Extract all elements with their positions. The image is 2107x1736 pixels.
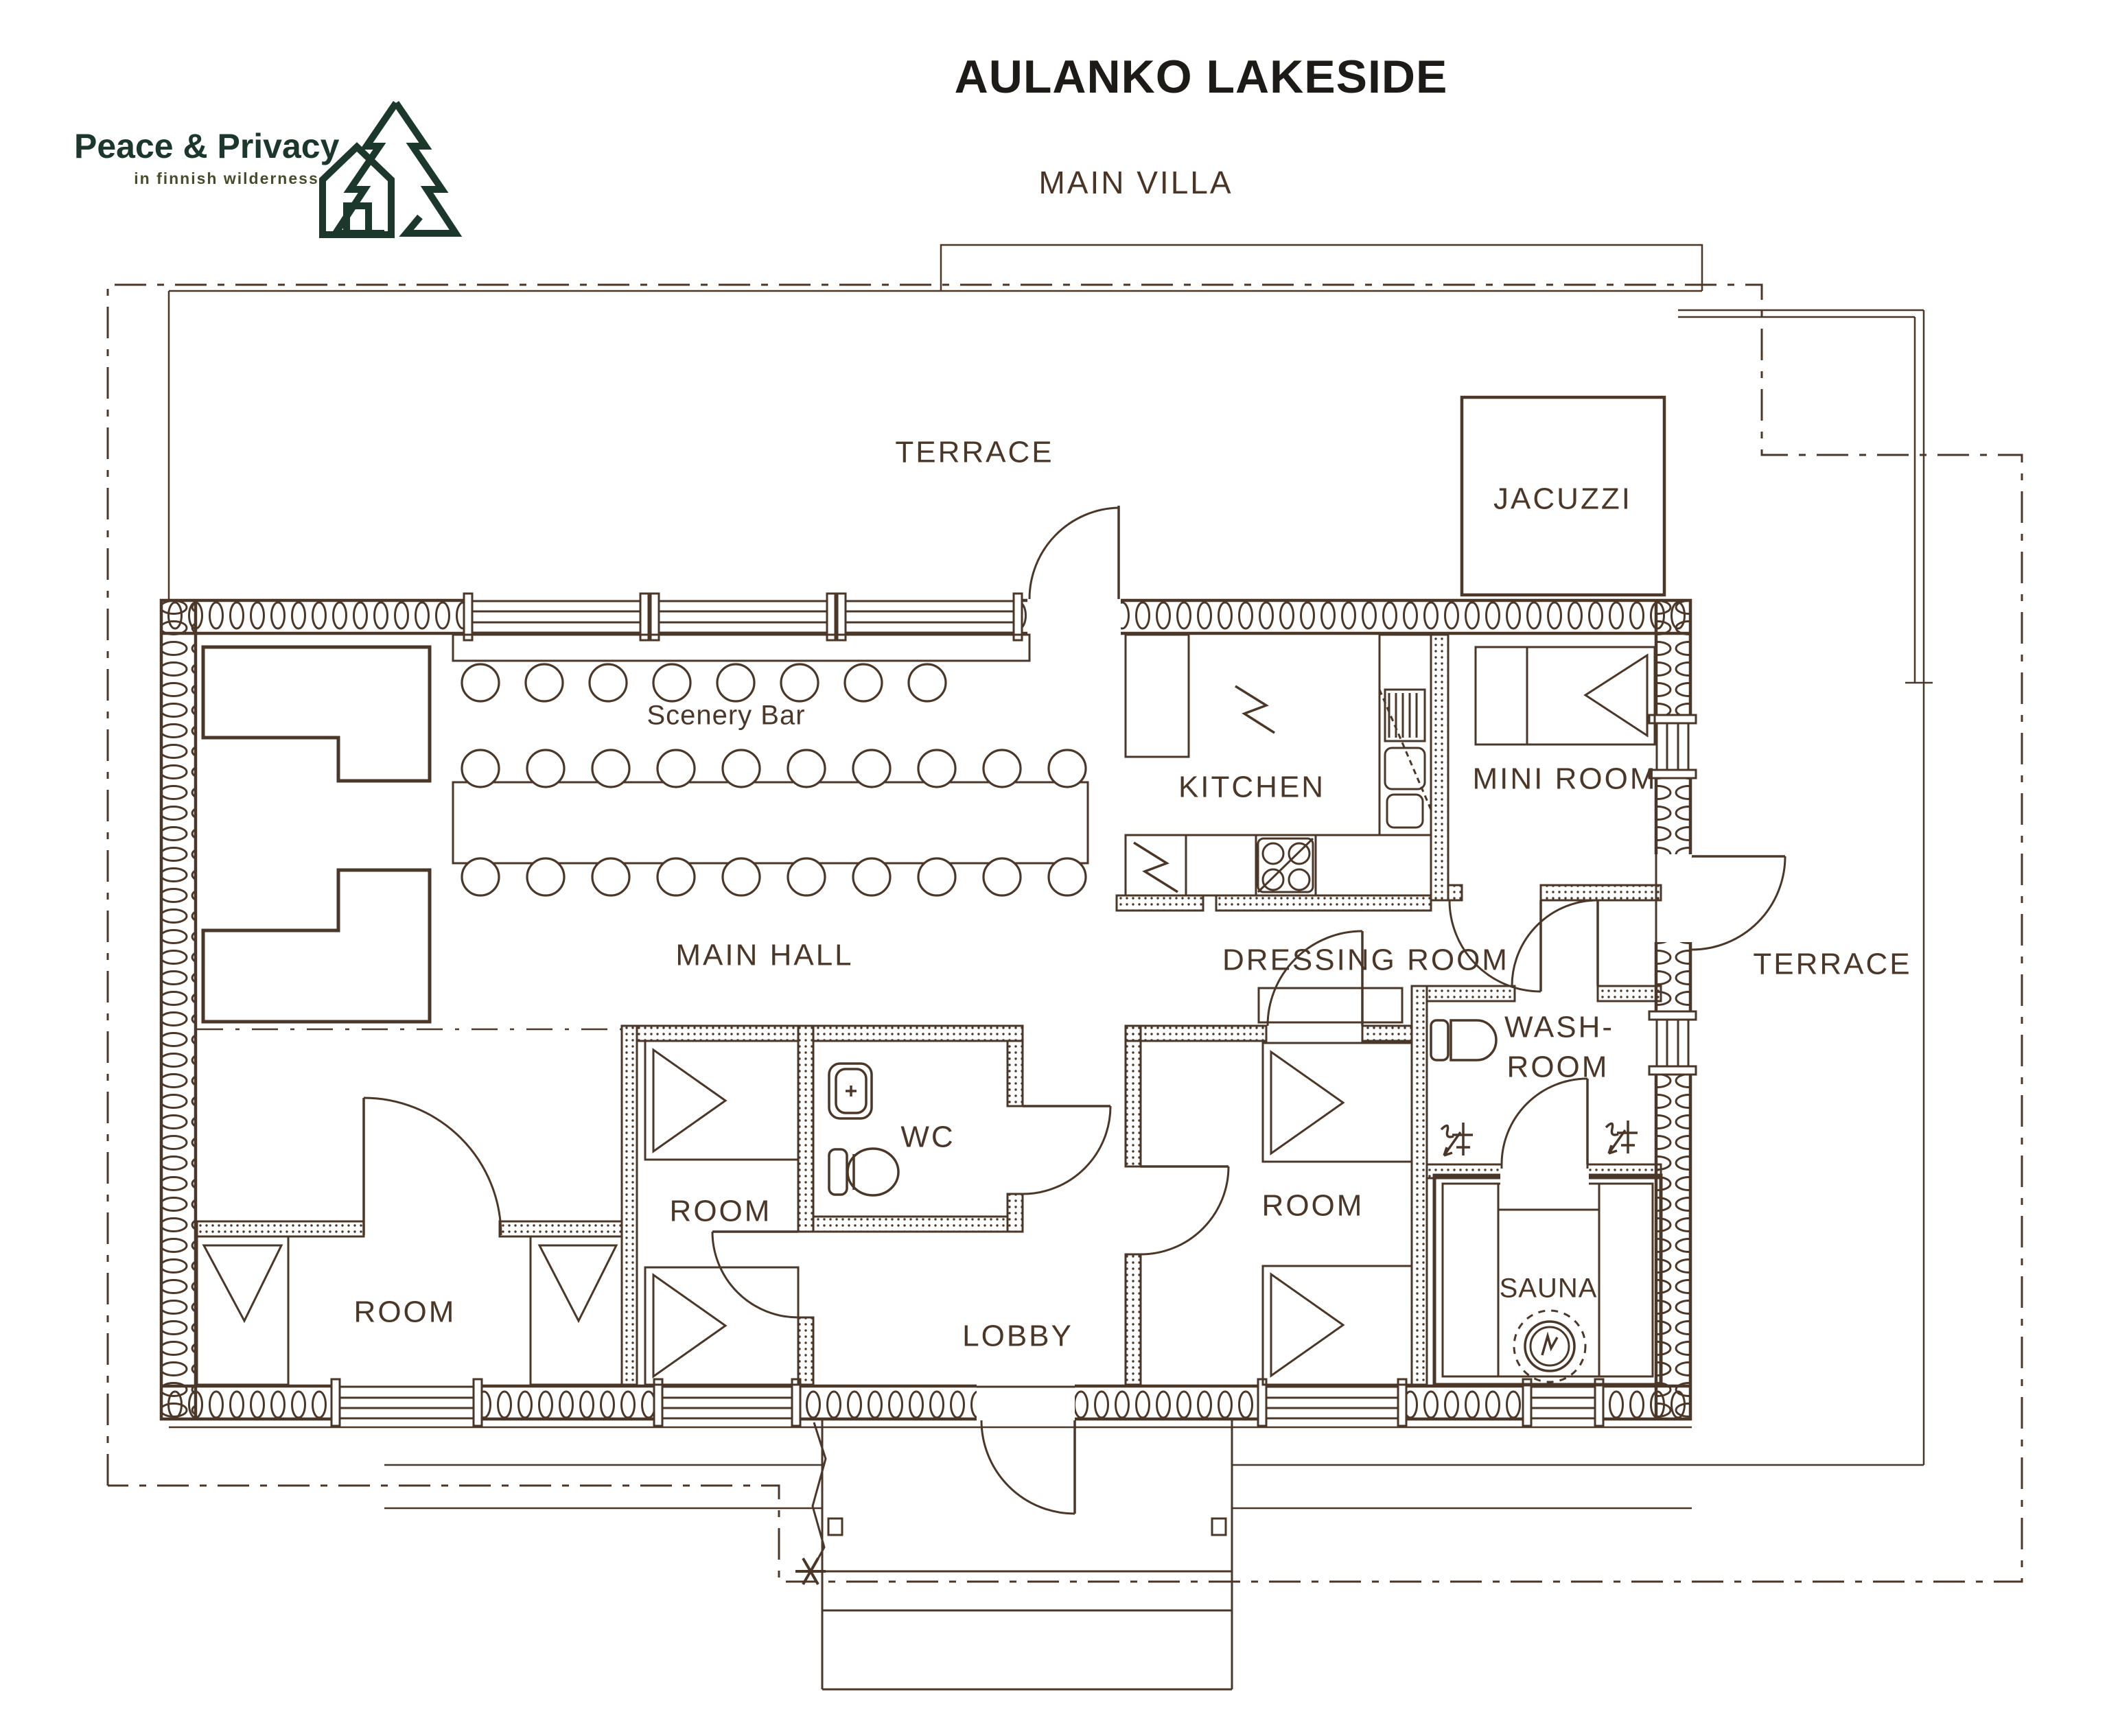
bed-pillow: [204, 1245, 281, 1321]
bed-pillow: [653, 1275, 725, 1376]
window-bottom-3: [1258, 1379, 1406, 1426]
porch-post: [828, 1518, 842, 1535]
wall-wc-north: [813, 1026, 1023, 1041]
wall-bedroom-north: [197, 1221, 364, 1236]
logo-tree-house-icon: [323, 103, 456, 235]
page-title: AULANKO LAKESIDE: [955, 51, 1448, 103]
window-top-2: [651, 594, 835, 640]
dining-chairs: [462, 750, 1086, 895]
wall-room-left-east: [622, 1026, 637, 1385]
toilet-wc: [829, 1149, 898, 1195]
label-main-hall: MAIN HALL: [675, 939, 853, 972]
label-scenery-bar: Scenery Bar: [647, 701, 805, 731]
toilet-washroom: [1431, 1020, 1496, 1060]
door-terrace-top: [1027, 506, 1121, 637]
dressing-bench: [1259, 988, 1402, 1022]
wall-kitchen-south: [1117, 895, 1203, 911]
sauna-heater-icon: [1514, 1311, 1585, 1382]
label-room-right: ROOM: [1262, 1189, 1364, 1223]
window-top-3: [837, 594, 1022, 640]
shower-icon: [1606, 1121, 1638, 1153]
bed: [531, 1236, 622, 1385]
page-subtitle: MAIN VILLA: [1038, 165, 1233, 200]
stove: [1258, 838, 1313, 892]
label-lobby: LOBBY: [962, 1319, 1073, 1353]
porch-post: [1212, 1518, 1226, 1535]
corner-sofa-lower: [203, 870, 430, 1022]
window-bottom-2: [654, 1379, 800, 1426]
bed-pillow: [653, 1050, 725, 1151]
wall-washroom-west: [1412, 986, 1427, 1385]
wc-sink: [829, 1064, 872, 1118]
wall-kitchen-east: [1431, 635, 1448, 900]
survey-star-marker: [795, 1558, 826, 1584]
label-terrace-top: TERRACE: [895, 436, 1053, 469]
kitchen-fixtures: [1126, 635, 1431, 895]
door-room-right: [1141, 1166, 1229, 1254]
door-bedroom-left: [364, 1098, 501, 1235]
label-terrace-right: TERRACE: [1753, 948, 1911, 981]
window-bottom-1: [331, 1379, 482, 1426]
dining-table: [453, 782, 1088, 863]
door-terrace-right: [1652, 854, 1785, 950]
miniroom-bed: [1476, 647, 1655, 744]
main-hall-furniture: [203, 635, 1088, 1022]
logo-subtitle: in finnish wilderness: [134, 169, 318, 187]
label-washroom-2: ROOM: [1507, 1051, 1609, 1084]
label-mini-room: MINI ROOM: [1473, 762, 1657, 796]
bar-stools: [462, 664, 946, 701]
interior-walls: [197, 635, 1661, 1385]
label-room-left: ROOM: [354, 1295, 456, 1329]
bed-pillow: [1271, 1274, 1343, 1376]
logo: Peace & Privacy in finnish wilderness: [74, 103, 456, 235]
window-right-2: [1649, 1011, 1696, 1075]
bed-pillow: [539, 1245, 616, 1321]
appliance-symbol: [1235, 686, 1274, 733]
appliance-symbol: [1134, 843, 1178, 892]
wall-left: [160, 599, 197, 1420]
window-top-1: [464, 594, 649, 640]
bar-counter: [453, 635, 1029, 661]
door-room-center: [712, 1232, 798, 1317]
label-wc: WC: [900, 1121, 955, 1154]
entrance-porch: [795, 1420, 1232, 1689]
label-kitchen: KITCHEN: [1178, 771, 1325, 804]
label-room-center: ROOM: [670, 1195, 772, 1228]
door-entrance: [977, 1382, 1075, 1514]
corner-sofa-upper: [203, 647, 430, 781]
logo-title: Peace & Privacy: [74, 127, 340, 165]
label-washroom-1: WASH-: [1504, 1011, 1614, 1044]
door-washroom-north: [1512, 900, 1598, 986]
label-dressing-room: DRESSING ROOM: [1222, 943, 1509, 977]
entry-direction-arrow: [813, 1422, 826, 1569]
wall-wc-south: [813, 1217, 1008, 1232]
label-sauna: SAUNA: [1500, 1274, 1598, 1304]
wc-fixtures: [829, 1064, 898, 1195]
label-jacuzzi: JACUZZI: [1493, 482, 1632, 516]
door-wc: [1023, 1106, 1110, 1194]
floor-plan-canvas: TERRACE JACUZZI Scenery Bar KITCHEN MINI…: [0, 0, 2107, 1736]
kitchen-cabinet: [1126, 635, 1189, 757]
bed-pillow: [1271, 1052, 1343, 1153]
shower-icon: [1441, 1123, 1473, 1156]
door-washroom-south: [1502, 1079, 1587, 1164]
wall-miniroom-south: [1541, 885, 1661, 900]
kitchen-sink: [1380, 635, 1431, 835]
